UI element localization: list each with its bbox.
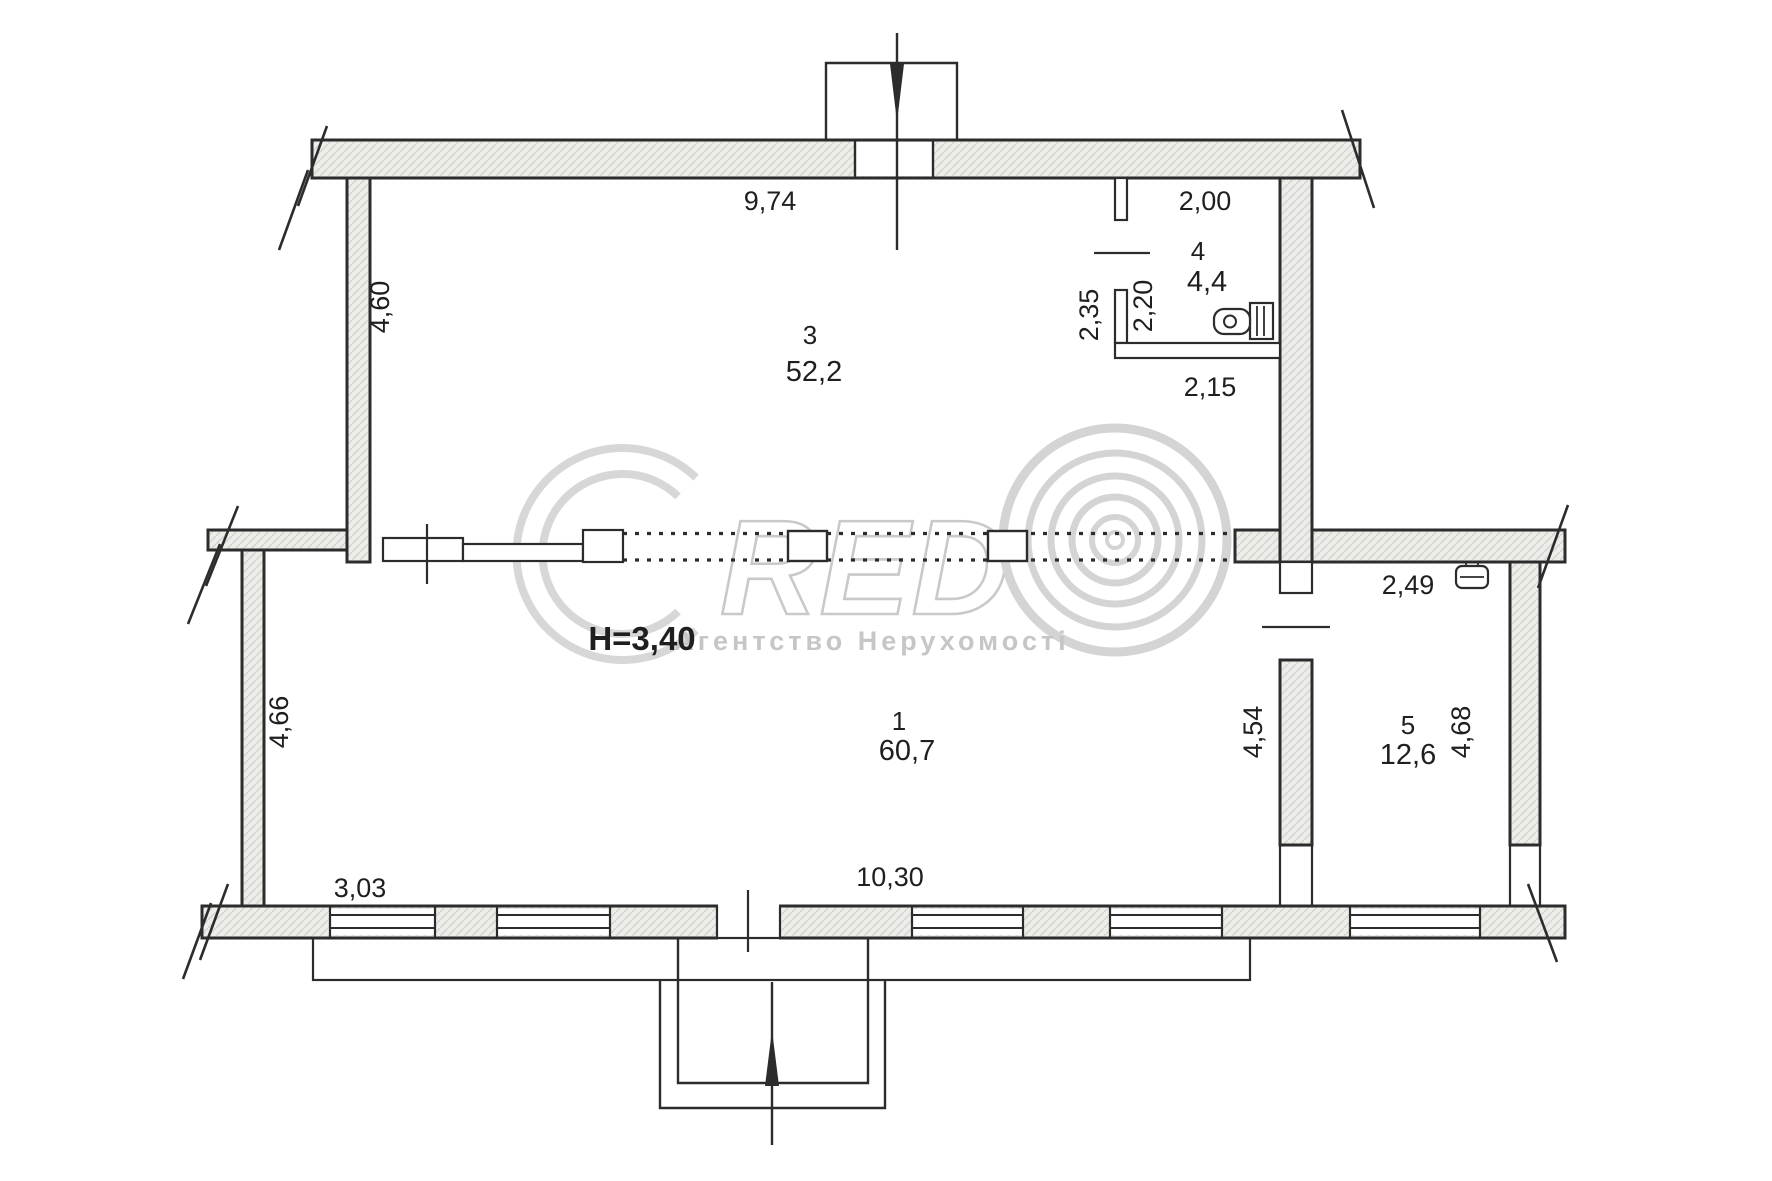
porch-and-sidewalk	[313, 938, 1250, 1108]
dim-wc-left-height: 2,35	[1074, 289, 1104, 342]
room5-area: 12,6	[1380, 739, 1436, 771]
dim-wc-inner-height: 2,20	[1128, 280, 1158, 333]
window-5-room5	[1350, 906, 1480, 938]
room1-room5-divider	[1280, 562, 1312, 906]
junction-stub	[1235, 530, 1280, 562]
room4-area: 4,4	[1187, 266, 1227, 298]
upper-right-wall	[1280, 178, 1312, 562]
room1-number: 1	[892, 706, 906, 736]
watermark-agency-text: Агентство Нерухомості	[674, 626, 1069, 656]
sink-icon	[1456, 561, 1488, 588]
toilet-icon	[1214, 303, 1273, 339]
floor-plan-sheet: RED Агентство Нерухомості	[0, 0, 1772, 1181]
room5-right-wall	[1510, 562, 1540, 906]
sidewalk-slab	[313, 938, 1250, 980]
room1-area: 60,7	[879, 735, 935, 767]
room1-room3-partition	[383, 530, 623, 562]
entrance-arrow-bottom	[765, 982, 779, 1145]
top-exterior-wall	[312, 140, 1360, 178]
floor-plan-canvas: RED Агентство Нерухомості	[0, 0, 1772, 1181]
dim-room1-left-height: 4,66	[264, 696, 294, 749]
room3-left-wall	[347, 178, 370, 562]
room4-number: 4	[1191, 236, 1205, 266]
window-1	[330, 906, 435, 938]
break-top-left-2	[279, 170, 308, 250]
middle-right-wall	[1312, 530, 1565, 562]
watermark-letters-red: RED	[720, 492, 1011, 643]
passage-column-1	[788, 531, 827, 561]
room1-left-wall	[242, 550, 264, 906]
dim-room1-bottom-width: 10,30	[856, 862, 924, 892]
passage-column-2	[988, 531, 1027, 561]
dim-room3-top-width: 9,74	[744, 186, 797, 216]
break-mid-left-2	[188, 544, 220, 624]
dim-room3-left-height: 4,60	[365, 281, 395, 334]
window-3	[912, 906, 1023, 938]
window-2	[497, 906, 610, 938]
dim-room1-window-left: 3,03	[334, 873, 387, 903]
room5-number: 5	[1401, 710, 1415, 740]
window-4	[1110, 906, 1222, 938]
watermark-circles-o	[1003, 428, 1227, 652]
dim-wc-bottom-width: 2,15	[1184, 372, 1237, 402]
ceiling-height-note: H=3,40	[588, 620, 695, 657]
dim-divider-height: 4,54	[1238, 706, 1268, 759]
room3-number: 3	[803, 320, 817, 350]
dim-wc-top-width: 2,00	[1179, 186, 1232, 216]
dim-room5-top-width: 2,49	[1382, 570, 1435, 600]
middle-left-wall	[208, 530, 347, 550]
room3-area: 52,2	[786, 356, 842, 388]
dim-room5-right-height: 4,68	[1446, 706, 1476, 759]
